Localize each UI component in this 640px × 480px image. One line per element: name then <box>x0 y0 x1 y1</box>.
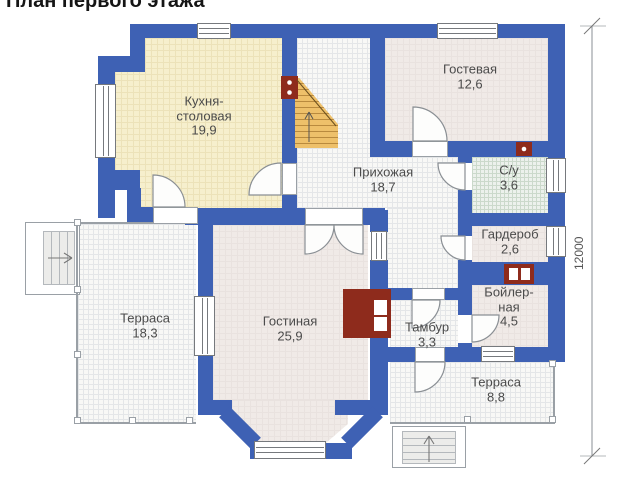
room-area: 4,5 <box>484 314 533 328</box>
door-arc <box>153 175 185 207</box>
room-name: С/у <box>499 163 519 178</box>
room-name: Прихожая <box>353 165 413 180</box>
room-label-living: Гостиная 25,9 <box>263 300 318 357</box>
room-label-boiler: Бойлер- ная 4,5 <box>484 271 533 342</box>
room-name: Гостиная <box>263 314 318 329</box>
room-label-wardrobe: Гардероб 2,6 <box>481 213 538 270</box>
room-area: 18,7 <box>353 180 413 194</box>
room-area: 3,3 <box>405 335 449 349</box>
room-area: 3,6 <box>499 178 519 192</box>
room-name: Гардероб <box>481 227 538 242</box>
room-area: 19,9 <box>176 123 231 137</box>
room-name: Терраса <box>120 311 170 326</box>
plan-symbols-layer <box>0 0 640 480</box>
room-area: 8,8 <box>471 390 521 404</box>
stair-marks <box>297 80 336 142</box>
dimension-value: 12000 <box>572 218 586 270</box>
room-label-guest: Гостевая 12,6 <box>443 48 497 105</box>
room-label-terrace-left: Терраса 18,3 <box>120 297 170 354</box>
room-label-terrace-bottom: Терраса 8,8 <box>471 361 521 418</box>
room-label-bathroom: С/у 3,6 <box>499 149 519 206</box>
page-title: План первого этажа <box>6 0 205 13</box>
door-arc <box>415 362 445 392</box>
door-arc <box>441 236 465 260</box>
room-name: Гостевая <box>443 62 497 77</box>
room-name: Терраса <box>471 375 521 390</box>
floor-plan: План первого этажа <box>0 0 640 480</box>
room-area: 2,6 <box>481 242 538 256</box>
room-label-kitchen: Кухня- столовая 19,9 <box>176 80 231 151</box>
room-area: 25,9 <box>263 329 318 343</box>
room-name: Кухня- столовая <box>176 94 231 123</box>
room-label-vestibule: Тамбур 3,3 <box>405 306 449 363</box>
room-area: 18,3 <box>120 326 170 340</box>
door-arc <box>438 163 465 190</box>
room-area: 12,6 <box>443 77 497 91</box>
outdoor-stair-arrows <box>48 253 434 462</box>
door-arc <box>305 225 334 254</box>
room-name: Тамбур <box>405 320 449 335</box>
door-arc <box>334 225 363 254</box>
room-name: Бойлер- ная <box>484 285 533 314</box>
door-arc <box>249 163 281 195</box>
room-label-hallway: Прихожая 18,7 <box>353 151 413 208</box>
door-arc <box>413 107 447 141</box>
